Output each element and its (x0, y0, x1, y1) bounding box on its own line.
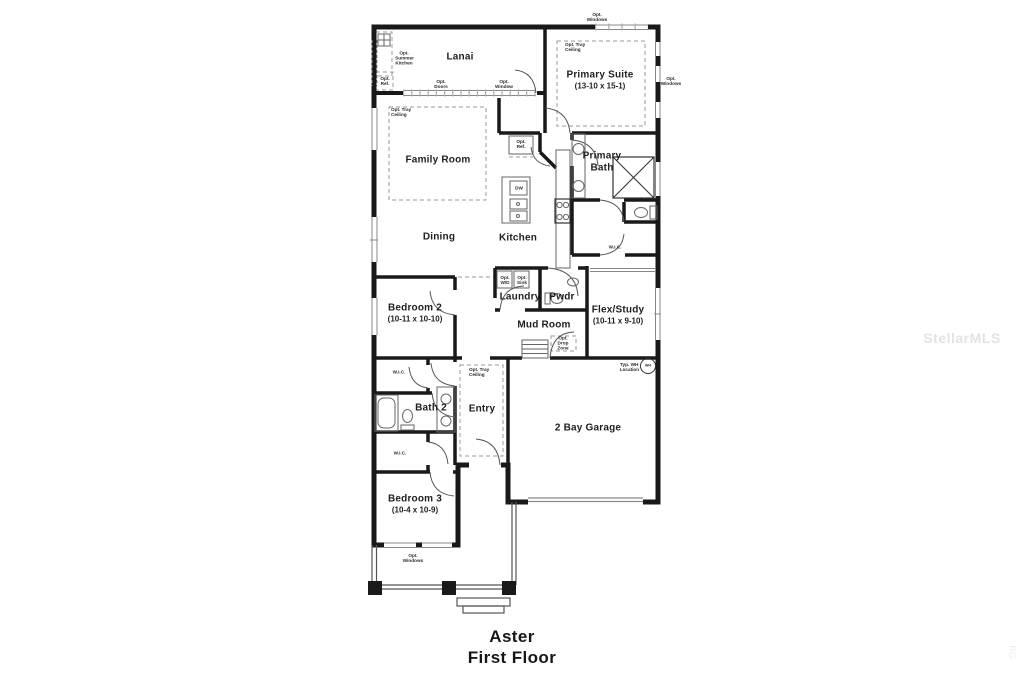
note-wic-bed2: W.I.C. (393, 369, 406, 374)
stellar-mls-watermark: StellarMLS (923, 330, 1000, 346)
note-wh: WH (645, 364, 651, 368)
porch-step-1 (457, 598, 510, 606)
note-opt-ref-lanai: Opt. Ref. (378, 76, 392, 86)
porch-post (442, 581, 456, 595)
kitchen-island (502, 177, 530, 223)
burner (563, 214, 568, 219)
note-opt-tray-primary: Opt. Tray Ceiling (565, 42, 593, 52)
room-label-bath2: Bath 2 (415, 402, 447, 414)
note-opt-wd: Opt. W/D (498, 275, 512, 285)
room-label-dining: Dining (423, 231, 455, 243)
note-opt-sink: Opt. Sink (515, 275, 529, 285)
room-label-primary-suite: Primary Suite (13-10 x 15-1) (566, 69, 633, 90)
note-wic-primary: W.I.C. (609, 244, 622, 249)
room-label-family-room: Family Room (406, 154, 471, 166)
note-opt-windows-bottom: Opt. Windows (403, 553, 424, 563)
plan-subtitle: First Floor (468, 648, 556, 668)
primary-sink-2 (573, 181, 584, 192)
note-dw: DW (515, 185, 523, 190)
note-opt-ref-kitchen: Opt. Ref. (514, 139, 528, 149)
primary-toilet-bowl (635, 208, 648, 218)
porch (368, 502, 516, 613)
note-opt-tray-family: Opt. Tray Ceiling (391, 107, 419, 117)
corner-watermark: RG (1007, 645, 1017, 659)
burner (563, 202, 568, 207)
porch-post (502, 581, 516, 595)
bath2-toilet-tank (401, 425, 414, 430)
room-label-garage: 2 Bay Garage (555, 422, 621, 434)
faucet-dot (517, 215, 520, 218)
room-label-kitchen: Kitchen (499, 232, 537, 244)
room-label-bedroom2: Bedroom 2 (10-11 x 10-10) (388, 302, 443, 323)
sink-bowl-2 (510, 211, 527, 221)
bath2-toilet-bowl (403, 410, 413, 423)
sink-bowl-1 (510, 199, 527, 209)
room-label-primary-bath: Primary Bath (575, 151, 629, 174)
faucet-dot (517, 203, 520, 206)
note-opt-summer-kitchen: Opt. Summer Kitchen (395, 50, 413, 66)
note-opt-doors: Opt. Doors (434, 79, 449, 89)
room-label-pwdr: Pwdr (549, 291, 574, 303)
bath2-sink-2 (441, 416, 451, 426)
room-label-laundry: Laundry (500, 291, 541, 303)
note-wh-location: Typ. WH Location (620, 362, 639, 372)
room-label-bedroom3: Bedroom 3 (10-4 x 10-9) (388, 493, 442, 514)
exterior-walls (374, 27, 658, 545)
note-opt-windows-top: Opt. Windows (587, 12, 608, 22)
plan-title: Aster (489, 627, 534, 647)
porch-post (368, 581, 382, 595)
room-label-mud-room: Mud Room (517, 319, 570, 331)
kitchen-counter (556, 150, 570, 268)
bath2-tub-inner (378, 398, 395, 428)
room-label-lanai: Lanai (446, 51, 473, 63)
note-opt-drop-zone: Opt. Drop Zone (555, 335, 572, 351)
porch-step-2 (463, 606, 504, 613)
note-wic-bed3: W.I.C. (394, 450, 407, 455)
note-opt-windows-right: Opt. Windows (661, 76, 682, 86)
floor-plan-page: Lanai Primary Suite (13-10 x 15-1) Famil… (0, 0, 1024, 682)
burner (557, 214, 562, 219)
note-opt-tray-entry: Opt. Tray Ceiling (469, 367, 497, 377)
burner (557, 202, 562, 207)
floorplan-drawing (0, 0, 1024, 682)
room-label-flex-study: Flex/Study (10-11 x 9-10) (592, 304, 645, 325)
note-opt-window: Opt. Window (495, 79, 514, 89)
room-label-entry: Entry (469, 403, 496, 415)
